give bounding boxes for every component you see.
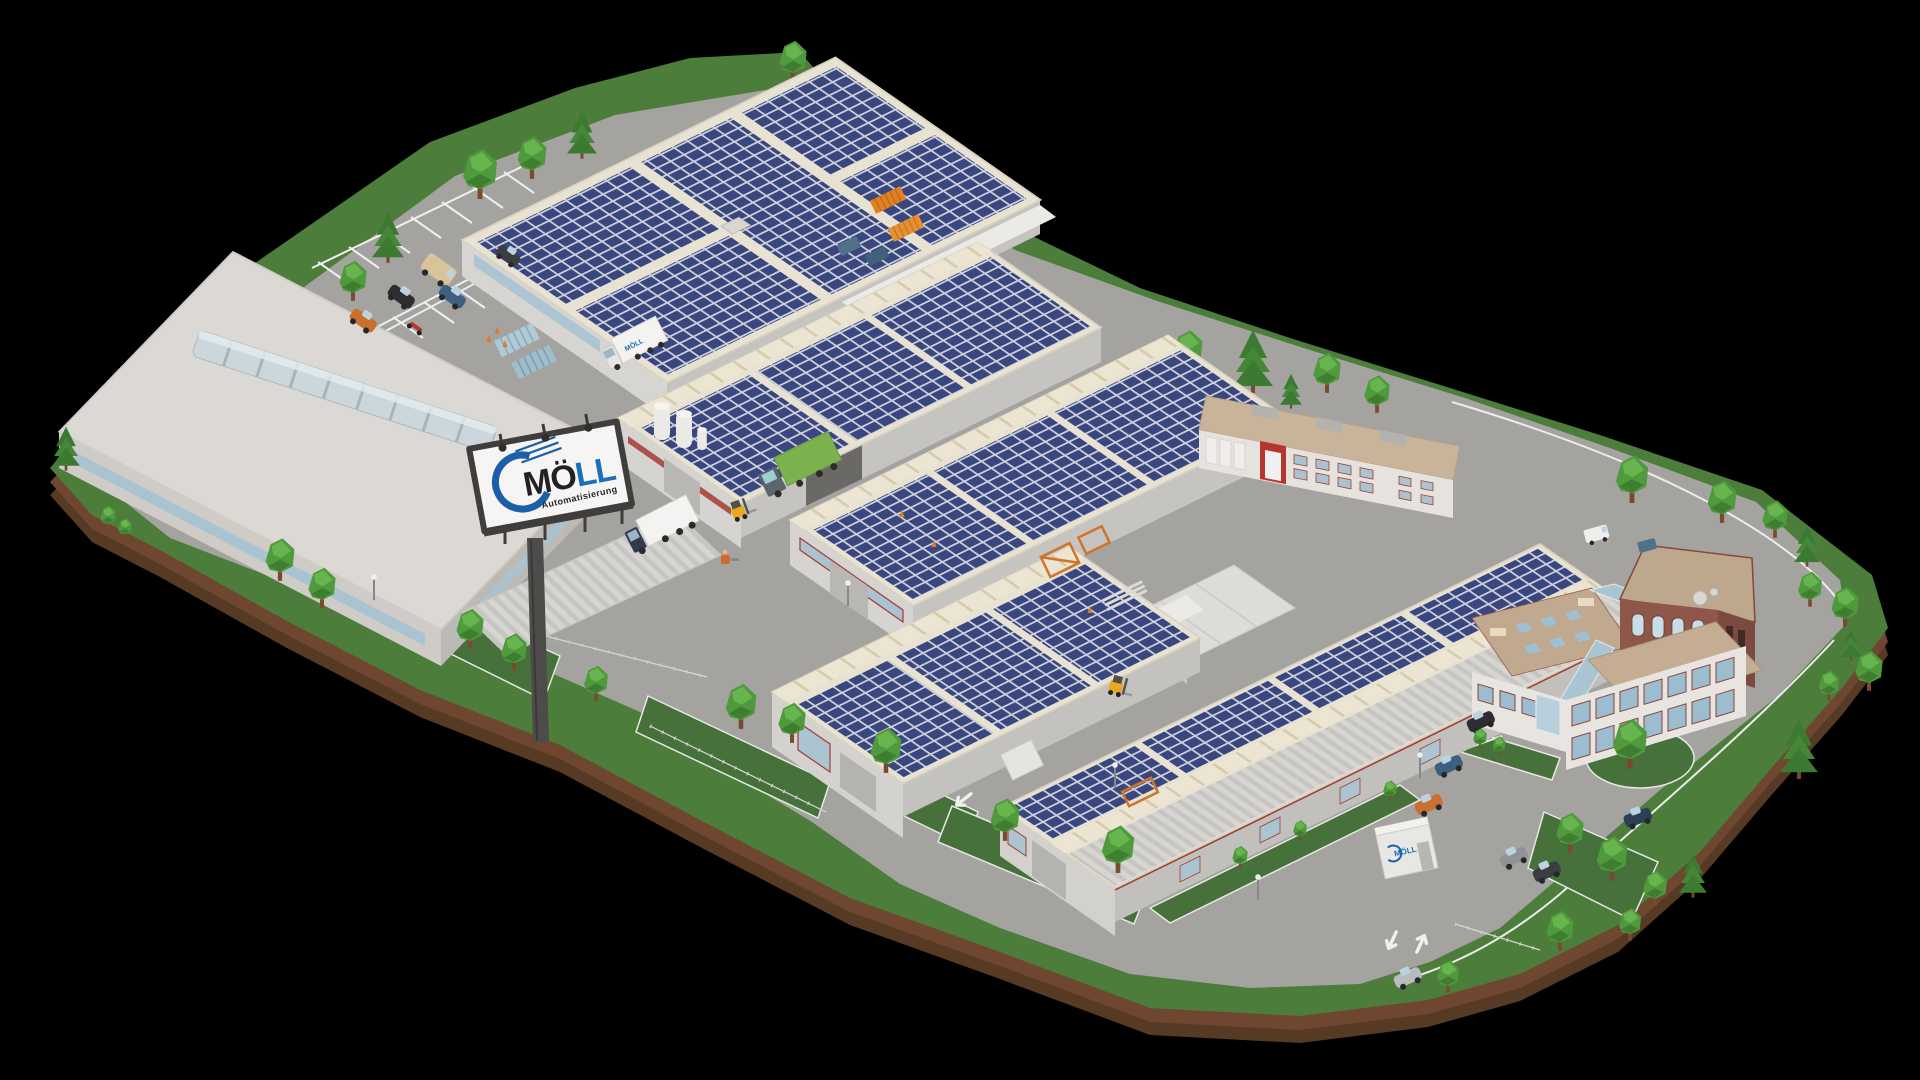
satellite-dish [1710, 588, 1718, 596]
site-overview-render: MÖLL [0, 0, 1920, 1080]
satellite-dish [1693, 591, 1707, 605]
silo-tank [676, 410, 692, 448]
roof-hatch [1490, 628, 1506, 636]
gatehouse-container: MÖLL [1374, 817, 1438, 879]
silo-tank [654, 402, 670, 440]
silo-tank [697, 427, 707, 450]
entrance-porch [1536, 694, 1560, 736]
roof-hatch [1578, 598, 1594, 606]
